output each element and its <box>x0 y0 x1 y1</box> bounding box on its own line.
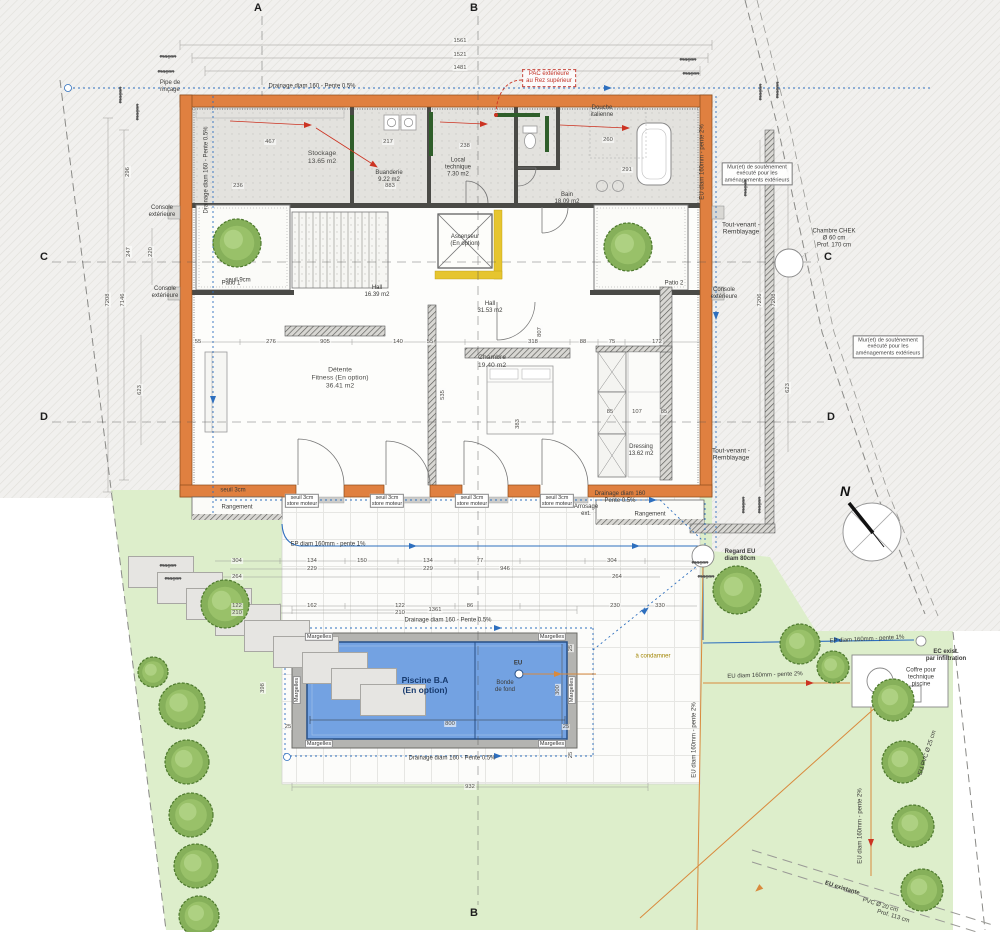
macon-5: maçon <box>758 84 764 101</box>
dim: 7146 <box>120 293 126 308</box>
macon-8: maçon <box>135 104 141 121</box>
seuil-4: seuil 3cm store moteur <box>540 494 574 508</box>
dim: 25 <box>568 751 574 759</box>
dim: 260 <box>602 137 614 143</box>
dim: 85 <box>660 409 668 415</box>
dim: 86 <box>466 603 474 609</box>
a-condamner: à condamner <box>635 654 670 661</box>
dim: 134 <box>306 558 318 564</box>
dim: 318 <box>527 339 539 345</box>
dim: 1361 <box>428 607 443 613</box>
margelles-1: Margelles <box>305 633 333 641</box>
room-douche: Douche italienne <box>591 105 613 119</box>
dim: 88 <box>579 339 587 345</box>
dim: 535 <box>440 389 446 401</box>
dim: 172 <box>651 339 663 345</box>
drainage-left: Drainage diam 160 - Pente 0.5% <box>204 126 211 213</box>
coffre-technique: Coffre pour technique piscine <box>906 668 936 689</box>
margelles-5: Margelles <box>293 676 301 704</box>
chambre-chek: Chambre CHEK Ø 60 cm Prof. 170 cm <box>812 229 855 250</box>
room-rangement-l: Rangement <box>221 505 252 512</box>
dim: 229 <box>422 566 434 572</box>
dim: 300 <box>555 684 561 696</box>
eu-line-v1: EU diam 160mm - pente 2% <box>692 702 699 777</box>
eu-pvc-25: EU PVC Ø 25 cm <box>918 730 939 777</box>
margelles-4: Margelles <box>538 740 566 748</box>
macon-2: maçon <box>158 69 175 75</box>
macon-10: maçon <box>741 497 747 514</box>
room-hall-2: Hall 31.53 m2 <box>477 301 502 315</box>
ec-exist: EC exist. par infiltration <box>926 649 966 663</box>
dim: 217 <box>382 139 394 145</box>
dim: 304 <box>606 558 618 564</box>
dim: 55 <box>426 339 434 345</box>
pipe-rincage: Pipe de rinçage <box>160 80 180 94</box>
dim: 296 <box>125 166 131 178</box>
dim: 230 <box>609 603 621 609</box>
dim: 122 <box>231 603 243 609</box>
dim: 946 <box>499 566 511 572</box>
dim: 229 <box>306 566 318 572</box>
tout-venant-2: Tout-venant - Remblayage <box>712 448 750 463</box>
dim: 807 <box>537 326 543 338</box>
section-marker-b-top: B <box>470 2 478 14</box>
room-patio-2: Patio 2 <box>665 281 684 288</box>
dim: 75 <box>608 339 616 345</box>
macon-4: maçon <box>683 71 700 77</box>
dim: 134 <box>422 558 434 564</box>
dim: 1481 <box>453 65 468 71</box>
macon-7: maçon <box>118 87 124 104</box>
room-ascenseur: Ascenseur (En option) <box>450 234 479 248</box>
dim: 122 <box>394 603 406 609</box>
drainage-right: Drainage diam 160 Pente 0.5% <box>595 491 646 505</box>
dim: 238 <box>459 143 471 149</box>
dim: 932 <box>464 784 476 790</box>
dim: 304 <box>231 558 243 564</box>
drainage-pool-bottom: Drainage diam 160 - Pente 0.5% <box>408 756 495 763</box>
dim: 467 <box>264 139 276 145</box>
dim: 85 <box>606 409 614 415</box>
regard-eu: Regard EU diam 80cm <box>724 549 755 563</box>
ep-line-1: EP diam 160mm - pente 1% <box>291 542 366 549</box>
annotation-layer: Pipe de rinçageDrainage diam 160 - Pente… <box>0 0 1000 932</box>
section-marker-a-top: A <box>254 2 262 14</box>
macon-6: maçon <box>775 82 781 99</box>
console-ext-1: Console extérieure <box>149 205 176 219</box>
dim: 330 <box>654 603 666 609</box>
section-marker-c-right: C <box>824 251 832 263</box>
tout-venant-1: Tout-venant - Remblayage <box>722 222 760 237</box>
macon-13: maçon <box>165 576 182 582</box>
drainage-top: Drainage diam 160 - Pente 0.5% <box>268 84 355 91</box>
console-ext-3: Console extérieure <box>711 287 738 301</box>
dim: 7206 <box>757 293 763 308</box>
dim: 905 <box>319 339 331 345</box>
dim: 162 <box>306 603 318 609</box>
macon-12: maçon <box>160 563 177 569</box>
pac-exterieure: PAC extérieure au Rez supérieur <box>522 69 576 87</box>
margelles-3: Margelles <box>305 740 333 748</box>
dim: 140 <box>392 339 404 345</box>
dim: 236 <box>232 183 244 189</box>
section-marker-b-bottom: B <box>470 907 478 919</box>
dim: 1561 <box>453 38 468 44</box>
room-detente: Détente Fitness (En option) 36.41 m2 <box>311 366 368 389</box>
seuil-5: seuil 3cm <box>220 488 245 495</box>
seuil-6: seuil 9cm <box>225 278 250 285</box>
arrosage-ext: Arrosage ext. <box>574 504 598 518</box>
eu-line-v2: EU diam 160mm - pente 2% <box>858 788 865 863</box>
dim: 383 <box>515 418 521 430</box>
room-bain: Bain 18.09 m2 <box>554 192 579 206</box>
dim: 77 <box>476 558 484 564</box>
piscine-title: Piscine B.A (En option) <box>402 676 449 696</box>
macon-15: maçon <box>698 574 715 580</box>
dim: 800 <box>444 721 456 727</box>
console-ext-2: Console extérieure <box>152 286 179 300</box>
dim: 210 <box>394 610 406 616</box>
seuil-1: seuil 3cm store moteur <box>285 494 319 508</box>
muret-soutenement-2: Mur(et) de soutènement exécuté pour les … <box>853 335 924 358</box>
muret-soutenement-1: Mur(et) de soutènement exécuté pour les … <box>722 162 793 185</box>
dim: 150 <box>356 558 368 564</box>
room-chambre: Chambre 19.40 m2 <box>478 354 506 370</box>
floor-plan-canvas: Pipe de rinçageDrainage diam 160 - Pente… <box>0 0 1000 932</box>
dim: 210 <box>231 610 243 616</box>
dim: 623 <box>785 382 791 394</box>
eu-existante: EU existante <box>824 880 860 897</box>
compass-letter: N <box>840 483 850 499</box>
eu-line-h: EU diam 160mm - pente 2% <box>727 671 803 681</box>
macon-9: maçon <box>743 180 749 197</box>
dim: 25 <box>284 724 292 730</box>
section-marker-c-left: C <box>40 251 48 263</box>
bonde-de-fond: Bonde de fond <box>495 680 515 694</box>
room-dressing: Dressing 13.62 m2 <box>628 444 653 458</box>
eu-line-v3: EU diam 160mm - pente 2% <box>700 124 707 199</box>
dim: 247 <box>126 246 132 258</box>
dim: 291 <box>621 167 633 173</box>
macon-1: maçon <box>160 54 177 60</box>
dim: 7208 <box>771 293 777 308</box>
margelles-6: Margelles <box>568 676 576 704</box>
dim: 25 <box>562 724 570 730</box>
drainage-pool-top: Drainage diam 160 - Pente 0.5% <box>404 618 491 625</box>
dim: 55 <box>194 339 202 345</box>
dim: 398 <box>260 682 266 694</box>
eu-bonde: EU <box>514 661 522 668</box>
dim: 264 <box>611 574 623 580</box>
macon-11: maçon <box>757 497 763 514</box>
room-local-technique: Local technique 7.30 m2 <box>445 158 471 179</box>
room-rangement-r: Rangement <box>634 512 665 519</box>
margelles-2: Margelles <box>538 633 566 641</box>
dim: 1521 <box>453 52 468 58</box>
dim: 276 <box>265 339 277 345</box>
section-marker-d-left: D <box>40 411 48 423</box>
seuil-3: seuil 3cm store moteur <box>455 494 489 508</box>
dim: 7208 <box>105 293 111 308</box>
ep-line-2: EP diam 160mm - pente 1% <box>829 635 904 646</box>
room-hall-1: Hall 16.39 m2 <box>364 285 389 299</box>
seuil-2: seuil 3cm store moteur <box>370 494 404 508</box>
dim: 25 <box>568 644 574 652</box>
dim: 220 <box>148 246 154 258</box>
dim: 883 <box>384 183 396 189</box>
section-marker-d-right: D <box>827 411 835 423</box>
macon-3: maçon <box>680 57 697 63</box>
dim: 264 <box>231 574 243 580</box>
room-stockage: Stockage 13.65 m2 <box>308 150 336 166</box>
dim: 107 <box>631 409 643 415</box>
room-buanderie: Buanderie 9.22 m2 <box>375 170 402 184</box>
dim: 623 <box>137 384 143 396</box>
macon-14: maçon <box>692 560 709 566</box>
